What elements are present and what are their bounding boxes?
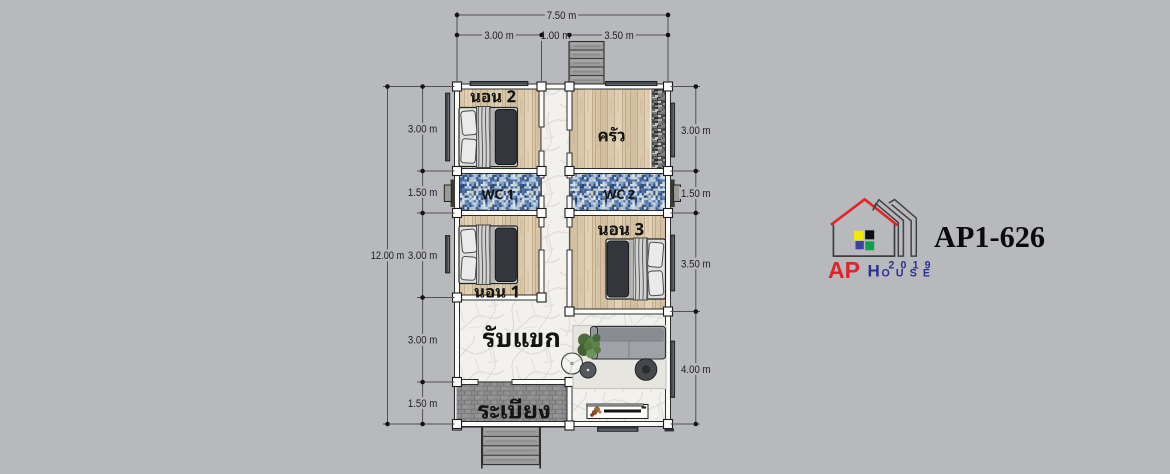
svg-text:1.50 m: 1.50 m xyxy=(408,187,438,199)
svg-text:1.50 m: 1.50 m xyxy=(408,398,438,410)
svg-text:3.00 m: 3.00 m xyxy=(408,335,438,347)
svg-text:1.50 m: 1.50 m xyxy=(681,188,711,200)
svg-text:AP: AP xyxy=(828,257,860,283)
svg-text:7.50 m: 7.50 m xyxy=(547,10,577,22)
svg-text:3.00 m: 3.00 m xyxy=(681,125,711,137)
svg-text:12.00 m: 12.00 m xyxy=(371,250,405,262)
svg-text:3.50 m: 3.50 m xyxy=(604,30,634,42)
svg-text:3.00 m: 3.00 m xyxy=(484,30,514,42)
svg-text:H: H xyxy=(868,262,880,281)
svg-text:3.00 m: 3.00 m xyxy=(408,250,438,262)
svg-text:AP1-626: AP1-626 xyxy=(934,219,1045,254)
svg-text:3.50 m: 3.50 m xyxy=(681,258,711,270)
svg-text:3.00 m: 3.00 m xyxy=(408,124,438,136)
svg-text:1.00 m: 1.00 m xyxy=(541,30,571,42)
svg-text:4.00 m: 4.00 m xyxy=(681,364,711,376)
